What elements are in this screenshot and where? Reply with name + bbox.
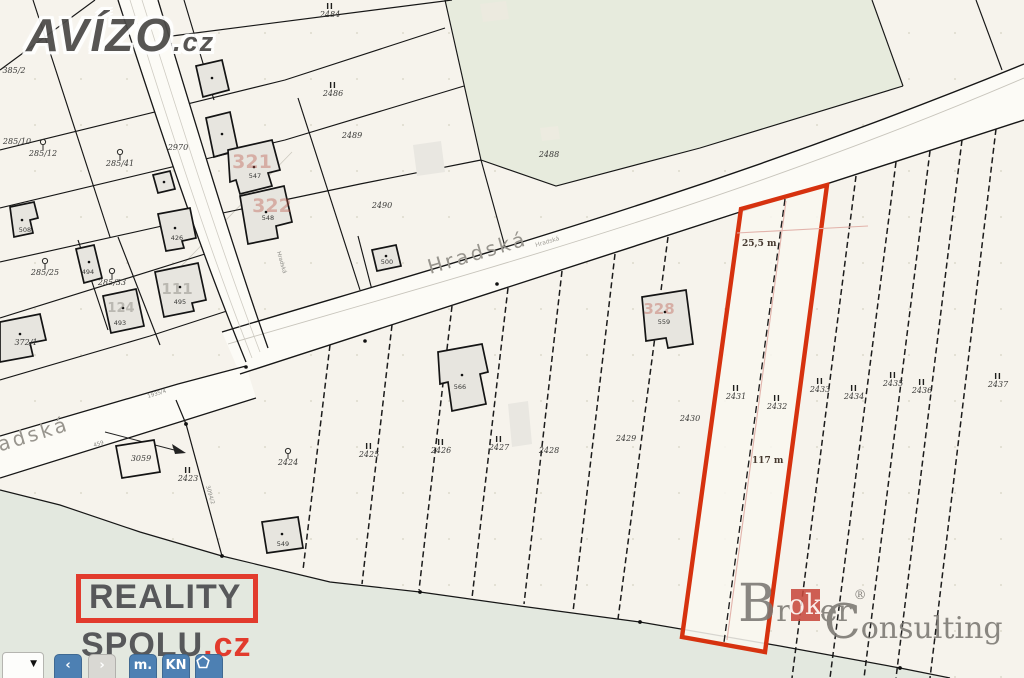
avizo-logo-name: AVÍZO [26,9,173,61]
parcel-number: 2432 [766,402,787,411]
parcel-number: 285/12 [28,149,57,158]
avizo-logo: AVÍZO.cz [26,8,215,62]
parcel-number: 2428 [538,446,559,455]
parcel-number: 285/33 [97,278,126,287]
cadastral-map-viewer: Hradská Hradská Hradská 459 1935/4 3094/… [0,0,1024,678]
toolbar-button-prev[interactable]: ‹ [54,654,82,678]
layer-dropdown[interactable]: ▼ [2,652,44,678]
parcel-number: 3059 [131,454,151,463]
orchard-symbol [285,448,290,453]
broker-consulting-logo: Broker® Consulting [738,578,988,670]
grassland-symbol: II [329,81,337,90]
parcel-number: 372/1 [14,338,37,347]
parcel-number: 2484 [319,10,340,19]
pentagon-icon [196,655,210,669]
parcel-number: 2426 [430,446,451,455]
house-number-watermark: 321 [232,151,272,173]
parcel-number: 2489 [341,131,362,140]
grassland-symbol: II [816,377,824,386]
parcel-number: 2433 [809,385,830,394]
building-number: 549 [277,540,289,548]
parcel-number: 2423 [177,474,198,483]
measurement-length-label: 117 m [752,456,784,466]
grassland-symbol: II [732,384,740,393]
broker-red-square: ok [791,589,820,621]
toolbar-button-kn[interactable]: KN [162,654,190,678]
grassland-symbol: II [918,378,926,387]
parcel-number: 285/25 [30,268,59,277]
grassland-symbol: II [773,394,781,403]
direction-arrow-head [172,444,186,454]
broker-ok-text: ok [788,588,822,621]
orchard-symbol [117,149,122,154]
map-toolbar: ▼ ‹›m.KN [0,650,280,678]
parcel-number: 2430 [679,414,700,423]
broker-letter-b: B [738,578,776,630]
street-side-label: Hradská [275,251,288,275]
toolbar-button-measure-m[interactable]: m. [129,654,157,678]
parcel-number: 2425 [358,450,379,459]
building-number: 547 [249,172,261,180]
broker-letter-c: C [824,598,861,646]
building-footprint [438,344,488,411]
parcel-number: 2429 [615,434,636,443]
reality-spolu-line1: REALITY [89,578,241,616]
house-number-watermark: 328 [643,300,674,318]
house-number-watermark: 124 [107,301,134,316]
building-number: 548 [262,214,274,222]
building-footprint [158,208,196,251]
toolbar-button-polygon[interactable] [195,654,223,678]
broker-line2: Consulting [824,598,1003,646]
grassland-symbol: II [326,2,334,11]
building-number: 426 [171,234,183,242]
orchard-symbol [40,139,45,144]
building-number: 500 [381,258,393,266]
parcel-number: 2437 [987,380,1009,389]
parcel-number: 2490 [371,201,392,210]
grassland-symbol: II [184,466,192,475]
building-number: 566 [454,383,466,391]
grassland-symbol: II [889,371,897,380]
parcel-number: 385/2 [2,66,25,75]
building-number: 493 [114,319,126,327]
measurement-width-label: 25,5 m [742,239,777,249]
orchard-symbol [42,258,47,263]
building-number: 495 [174,298,186,306]
parcel-number: 2424 [277,458,298,467]
parcel-number: 285/10 [2,137,31,146]
chevron-down-icon: ▼ [30,659,37,669]
parcel-number: 2434 [843,392,864,401]
toolbar-button-next[interactable]: › [88,654,116,678]
building-number: 494 [82,268,94,276]
parcel-number: 285/41 [105,159,134,168]
broker-onsulting-text: onsulting [861,611,1003,646]
parcel-number: 2970 [167,143,188,152]
grassland-symbol: II [437,438,445,447]
grassland-symbol: II [850,384,858,393]
parcel-number: 2486 [322,89,343,98]
parcel-number: 2435 [882,379,903,388]
grassland-symbol: II [365,442,373,451]
parcel-number: 2431 [725,392,746,401]
building-number: 508 [19,226,31,234]
building-number: 559 [658,318,670,326]
reality-spolu-frame: REALITY [76,574,258,623]
house-number-watermark: 111 [161,280,192,298]
orchard-symbol [109,268,114,273]
parcel-number: 2488 [538,150,559,159]
parcel-number: 2436 [911,386,932,395]
grassland-symbol: II [495,435,503,444]
parcel-number: 2427 [488,443,510,452]
grassland-symbol: II [994,372,1002,381]
avizo-logo-tld: .cz [173,27,215,57]
